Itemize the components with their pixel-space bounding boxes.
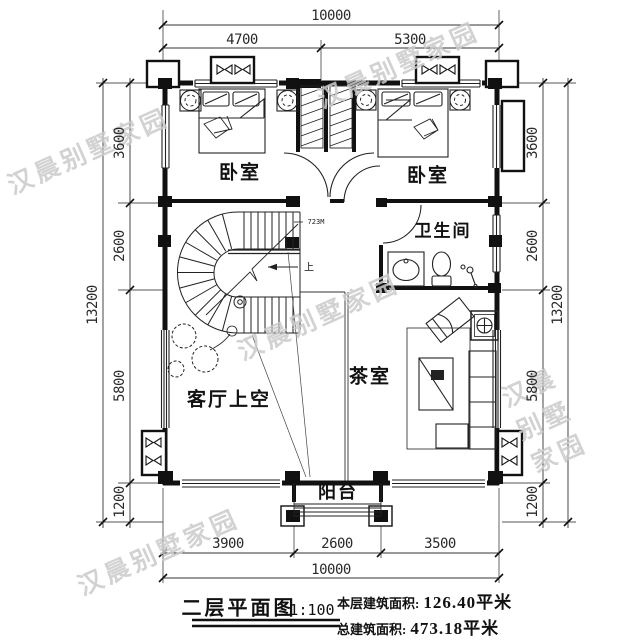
room-label-bathroom: 卫生间: [415, 217, 472, 242]
total-area-label: 总建筑面积:: [337, 622, 406, 637]
room-label-tea-room: 茶室: [349, 362, 391, 389]
total-area-row: 总建筑面积: 473.18平米: [337, 614, 499, 639]
dim-right-seg-1: 3600: [525, 127, 541, 159]
floor-area-label: 本层建筑面积:: [337, 596, 419, 611]
title-underline: [192, 620, 340, 626]
walls: [163, 81, 499, 502]
stair-note: 723M: [308, 218, 325, 226]
dim-left-seg-2: 2600: [112, 230, 128, 262]
room-label-living-void: 客厅上空: [187, 385, 271, 412]
void-lines: [252, 252, 310, 477]
dim-left-seg-1: 3600: [112, 127, 128, 159]
dim-bottom-seg-3: 3500: [424, 536, 456, 552]
tea-room-furniture: [407, 298, 498, 449]
furniture-bedroom-right: [356, 89, 470, 157]
room-label-bedroom-right: 卧室: [407, 161, 449, 188]
dim-right-seg-2: 2600: [525, 230, 541, 262]
dim-left-seg-4: 1200: [112, 486, 128, 518]
dim-left-seg-3: 5800: [112, 370, 128, 402]
staircase: [177, 212, 303, 333]
dim-left-overall: 13200: [85, 285, 101, 325]
floor-area-value: 126.40平米: [423, 593, 512, 612]
dim-bottom-seg-1: 3900: [212, 536, 244, 552]
dim-right-seg-3: 5800: [525, 370, 541, 402]
bathroom-fixtures: [388, 252, 477, 288]
floor-area-row: 本层建筑面积: 126.40平米: [337, 588, 512, 613]
drawing-title: 二层平面图: [182, 592, 297, 621]
dim-top-seg-1: 4700: [226, 32, 258, 48]
dim-right-overall: 13200: [550, 285, 566, 325]
drawing-scale: 1:100: [289, 601, 334, 619]
floor-plan-page: 汉晨别墅家园 汉晨别墅家园 汉晨别墅家园 汉晨别墅家园 汉晨别墅家园 10000…: [0, 0, 640, 640]
furniture-bedroom-left: [180, 89, 298, 153]
total-area-value: 473.18平米: [410, 619, 499, 638]
columns: [158, 78, 503, 526]
dim-right-seg-4: 1200: [525, 486, 541, 518]
dim-bottom-overall: 10000: [311, 562, 351, 578]
dim-top-seg-2: 5300: [394, 32, 426, 48]
stair-up-label: 上: [304, 259, 314, 274]
room-label-balcony: 阳台: [318, 478, 358, 504]
dim-bottom-seg-2: 2600: [321, 536, 353, 552]
dim-top-overall: 10000: [311, 8, 351, 24]
doors: [284, 153, 421, 243]
room-label-bedroom-left: 卧室: [219, 158, 261, 185]
